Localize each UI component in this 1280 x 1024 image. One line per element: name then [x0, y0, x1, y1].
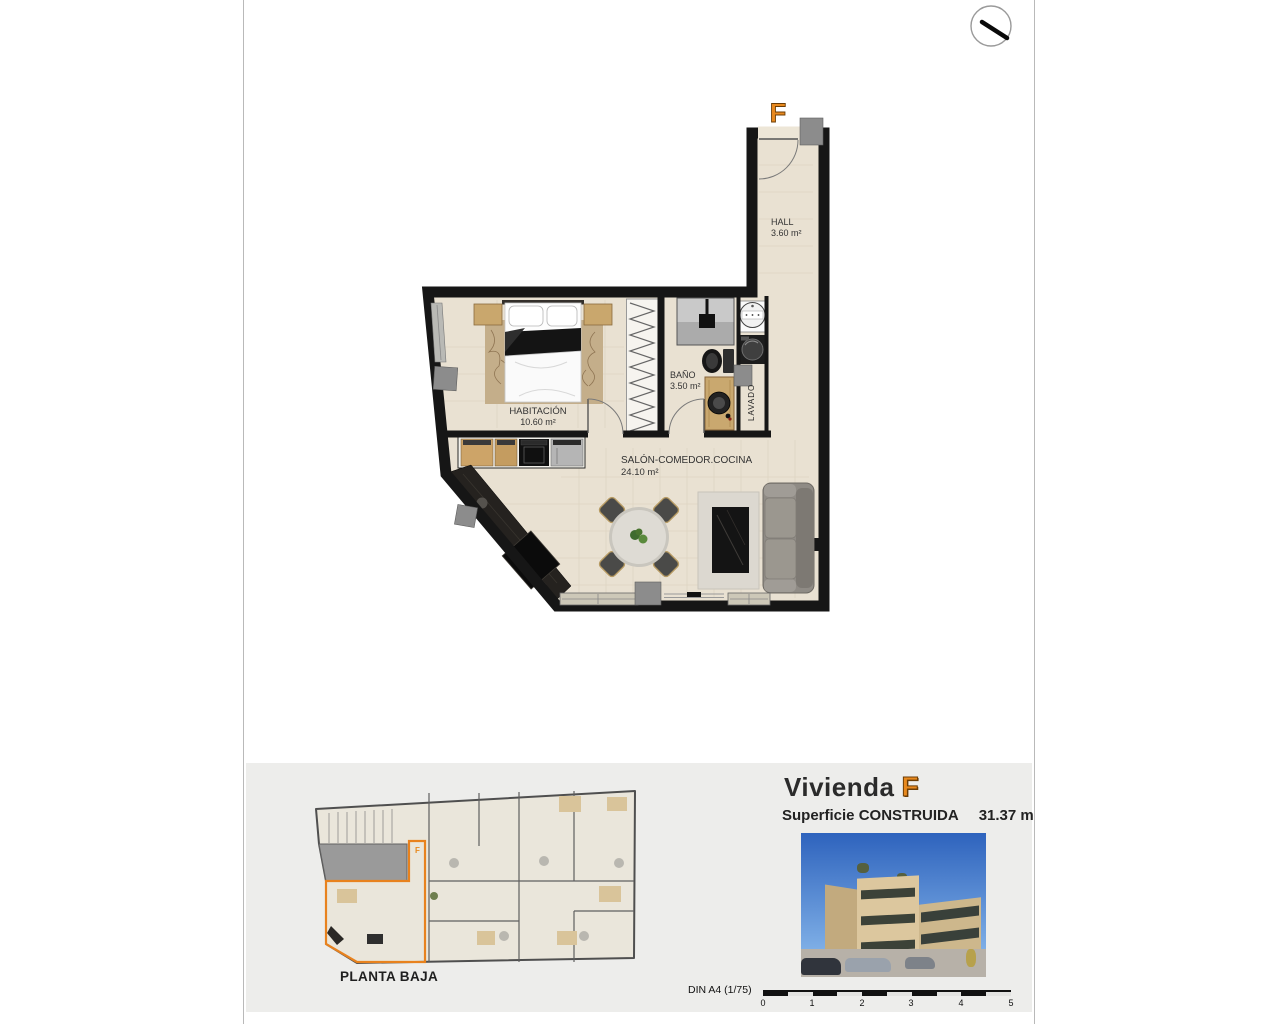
bano-name: BAÑO — [670, 370, 696, 380]
planta-baja-label: PLANTA BAJA — [340, 969, 438, 984]
salon-area: 24.10 m² — [621, 467, 659, 478]
dryer — [739, 335, 766, 364]
wardrobe — [627, 299, 659, 432]
scale-tick: 2 — [856, 998, 868, 1008]
unit-title-letter: F — [901, 771, 918, 802]
scale-label: DIN A4 (1/75) — [688, 984, 752, 996]
hall-name: HALL — [771, 217, 794, 227]
pillow — [547, 306, 577, 326]
kitchen-counter — [458, 437, 585, 468]
surface-value: 31.37 m² — [979, 807, 1035, 824]
scale-ticks: 0 1 2 3 4 5 — [763, 998, 1011, 1010]
entrance-opening — [758, 127, 800, 140]
washing-machine — [739, 301, 766, 332]
car — [801, 958, 841, 975]
nightstand — [474, 304, 502, 325]
pillow — [509, 306, 543, 326]
unit-title: Vivienda — [784, 772, 894, 802]
scale-tick: 0 — [757, 998, 769, 1008]
hall-area: 3.60 m² — [771, 228, 802, 238]
coffee-table — [712, 507, 749, 573]
bed — [502, 300, 584, 402]
sheet-page: HALL 3.60 m² BAÑO 3.50 m² HABITACIÓN 10.… — [243, 0, 1035, 1024]
unit-title-row: ViviendaF — [784, 771, 919, 803]
scale-bar — [763, 990, 1011, 998]
bano-area: 3.50 m² — [670, 381, 701, 391]
shower-head — [699, 314, 715, 328]
lavado-label: LAVADO — [747, 384, 756, 421]
mini-unit-letter: F — [415, 846, 420, 855]
roof-plant — [857, 863, 869, 873]
scale-tick: 1 — [806, 998, 818, 1008]
sofa — [763, 483, 814, 593]
scale-tick: 5 — [1005, 998, 1017, 1008]
unit-letter-marker: F — [770, 98, 787, 128]
scale-tick: 3 — [905, 998, 917, 1008]
vanity-sink — [705, 377, 734, 430]
mini-gray-block — [319, 844, 407, 881]
dining-set — [598, 496, 680, 578]
shrub — [966, 949, 976, 967]
nightstand — [584, 304, 612, 325]
building-photo — [801, 833, 986, 977]
car — [905, 957, 935, 969]
car — [845, 958, 891, 972]
habitacion-area: 10.60 m² — [520, 417, 556, 427]
surface-row: Superficie CONSTRUIDA31.37 m² — [782, 807, 1035, 824]
magnifier-handle — [982, 22, 1007, 38]
habitacion-name: HABITACIÓN — [509, 406, 566, 417]
salon-name: SALÓN-COMEDOR.COCINA — [621, 453, 752, 466]
scale-tick: 4 — [955, 998, 967, 1008]
shower — [677, 298, 734, 345]
planta-baja-mini-plan: F — [314, 787, 639, 965]
magnifier-icon[interactable] — [968, 2, 1016, 50]
toilet — [702, 349, 734, 373]
footer-panel: F PLANTA BAJA ViviendaF Superficie CONST… — [246, 763, 1032, 1012]
main-floor-plan: HALL 3.60 m² BAÑO 3.50 m² HABITACIÓN 10.… — [421, 90, 841, 620]
surface-label: Superficie CONSTRUIDA — [782, 807, 959, 824]
